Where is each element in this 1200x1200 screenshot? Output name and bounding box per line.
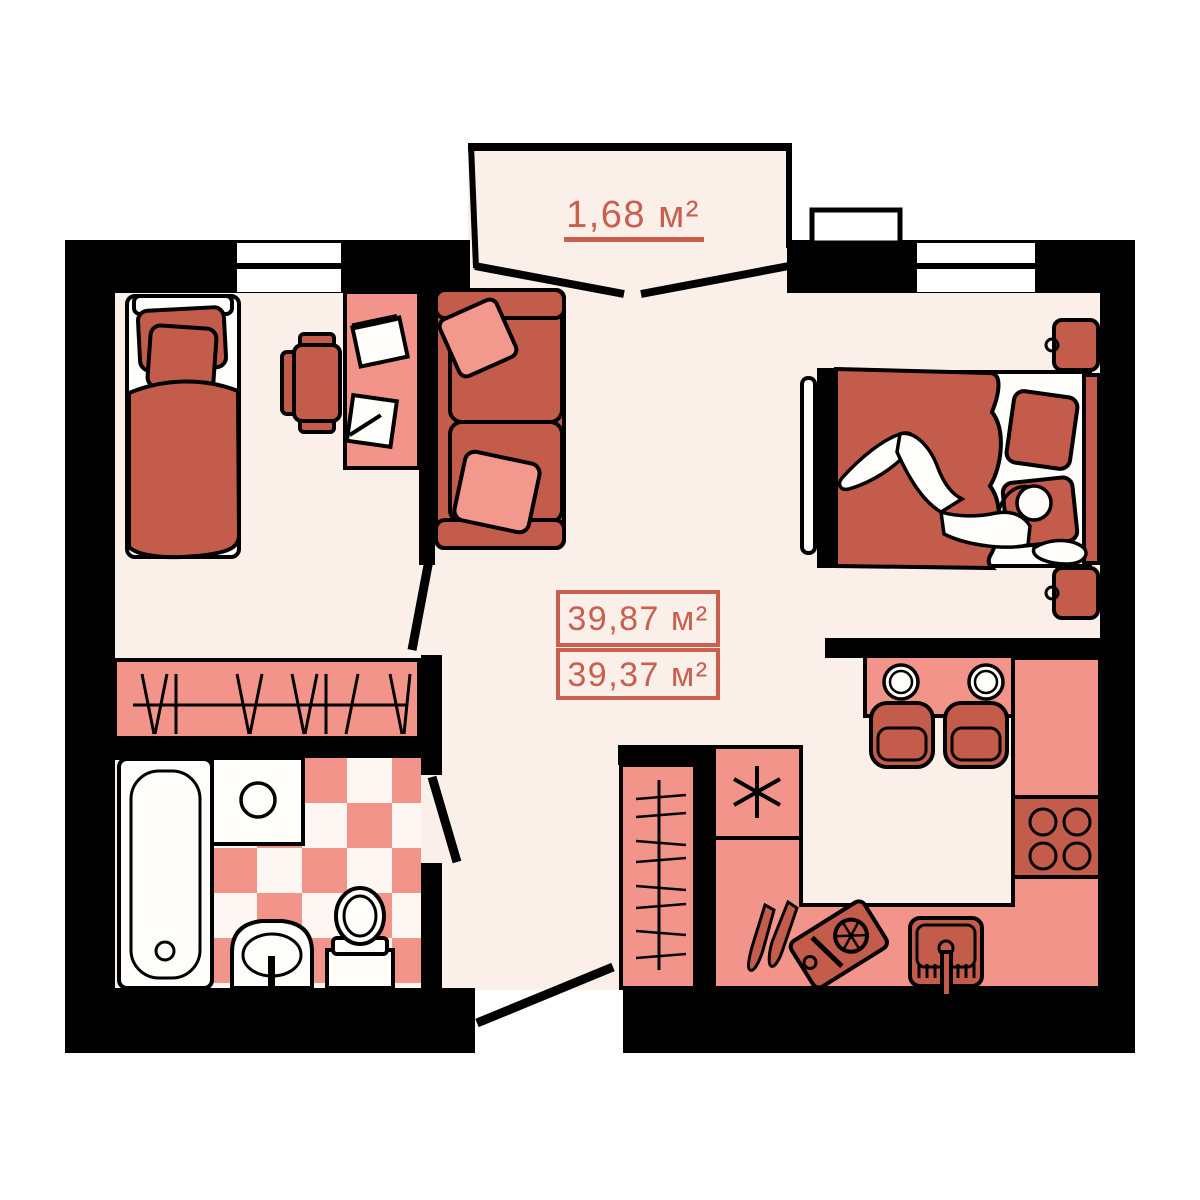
ac-unit-box bbox=[812, 210, 900, 243]
bed-footboard bbox=[802, 378, 815, 553]
bar-chair-1 bbox=[871, 703, 933, 767]
toilet bbox=[327, 888, 393, 988]
floor-plan: 1,68 м² bbox=[0, 0, 1200, 1200]
nightstand-bottom bbox=[1046, 568, 1098, 618]
single-bed bbox=[127, 296, 239, 557]
wardrobe bbox=[621, 765, 695, 988]
nightstand-top bbox=[1046, 320, 1098, 370]
living-area-label: 39,37 м² bbox=[567, 656, 708, 694]
bed-pillow bbox=[1005, 390, 1078, 470]
window-right bbox=[917, 243, 1035, 292]
stove bbox=[1013, 797, 1100, 877]
closet bbox=[115, 660, 419, 738]
floor-plan-svg: 1,68 м² bbox=[0, 0, 1200, 1200]
sofa bbox=[436, 290, 564, 548]
washing-machine bbox=[212, 758, 303, 844]
kitchen-sink bbox=[910, 918, 982, 996]
double-bed bbox=[802, 368, 1099, 568]
total-area-label: 39,87 м² bbox=[567, 600, 708, 638]
bed-headboard bbox=[1084, 375, 1099, 563]
bathroom bbox=[119, 758, 421, 988]
bathroom-sink bbox=[232, 921, 312, 988]
balcony-label-underline bbox=[564, 237, 704, 242]
fridge bbox=[714, 747, 801, 838]
balcony-area-label: 1,68 м² bbox=[566, 194, 700, 236]
paper-sheet bbox=[347, 395, 397, 447]
bar-chair-2 bbox=[945, 703, 1007, 767]
window-left bbox=[237, 243, 341, 292]
bathtub bbox=[119, 759, 212, 988]
sofa-pillow bbox=[453, 450, 542, 534]
desk bbox=[345, 292, 419, 468]
area-labels: 39,87 м² 39,37 м² bbox=[558, 592, 718, 698]
